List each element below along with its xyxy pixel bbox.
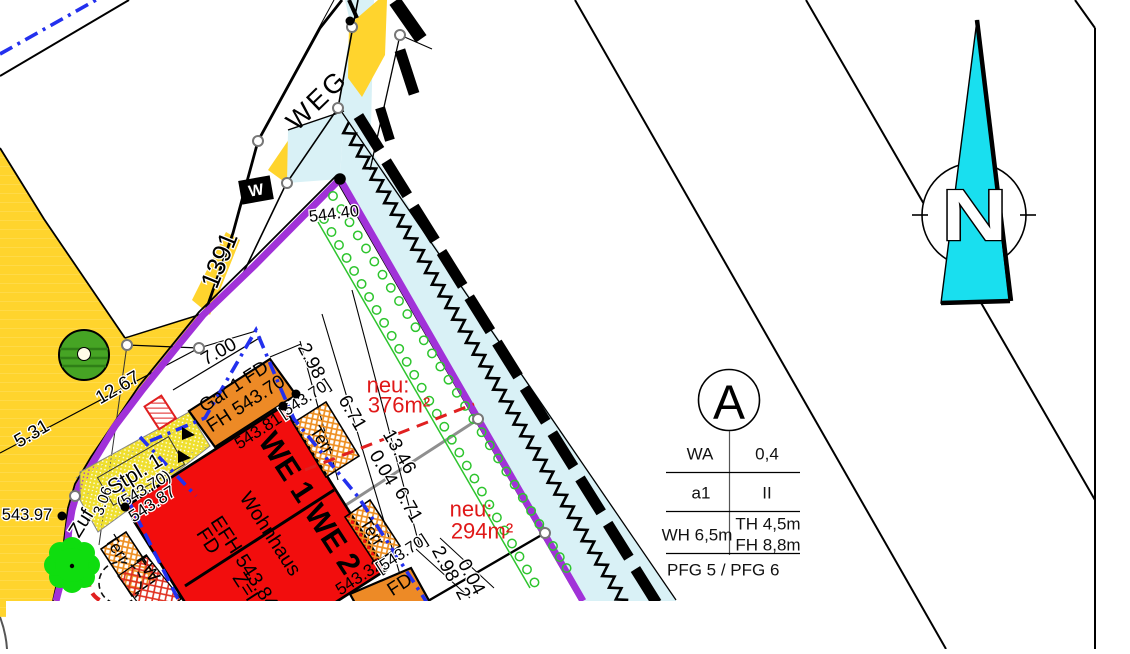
svg-text:294m²: 294m² <box>451 519 513 544</box>
svg-text:N: N <box>942 176 1008 256</box>
svg-text:376m²: 376m² <box>368 393 430 418</box>
svg-text:PFG 5 / PFG 6: PFG 5 / PFG 6 <box>667 561 779 580</box>
svg-text:a1: a1 <box>692 484 711 503</box>
svg-text:WA: WA <box>687 445 714 464</box>
svg-text:A: A <box>713 377 745 430</box>
svg-text:FH 8,8m: FH 8,8m <box>735 536 800 555</box>
svg-text:II: II <box>762 484 771 503</box>
svg-text:0,4: 0,4 <box>755 445 779 464</box>
svg-text:WH 6,5m: WH 6,5m <box>662 526 733 545</box>
svg-text:TH 4,5m: TH 4,5m <box>735 515 800 534</box>
svg-text:543.97: 543.97 <box>2 506 52 524</box>
